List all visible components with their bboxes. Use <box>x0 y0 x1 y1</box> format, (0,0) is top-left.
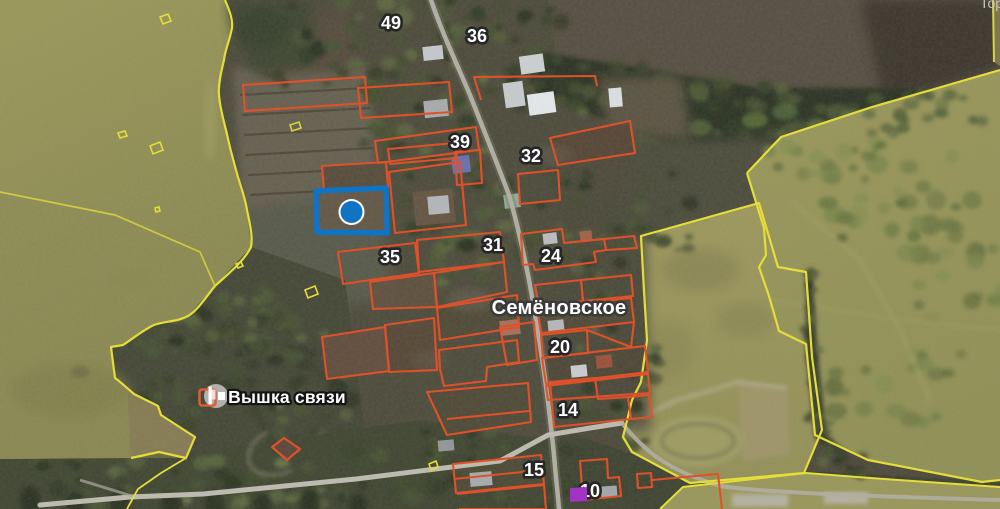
svg-text:Семёновское: Семёновское <box>492 297 627 319</box>
svg-text:32: 32 <box>521 146 541 166</box>
svg-text:35: 35 <box>380 247 400 267</box>
svg-text:31: 31 <box>483 235 503 255</box>
svg-text:39: 39 <box>450 132 470 152</box>
svg-text:49: 49 <box>381 13 401 33</box>
svg-text:Вышка связи: Вышка связи <box>228 387 346 407</box>
svg-text:20: 20 <box>550 337 570 357</box>
svg-text:24: 24 <box>541 246 561 266</box>
svg-text:15: 15 <box>524 460 544 480</box>
svg-text:Тор: Тор <box>980 0 1000 11</box>
svg-text:14: 14 <box>558 400 578 420</box>
svg-text:36: 36 <box>467 26 487 46</box>
